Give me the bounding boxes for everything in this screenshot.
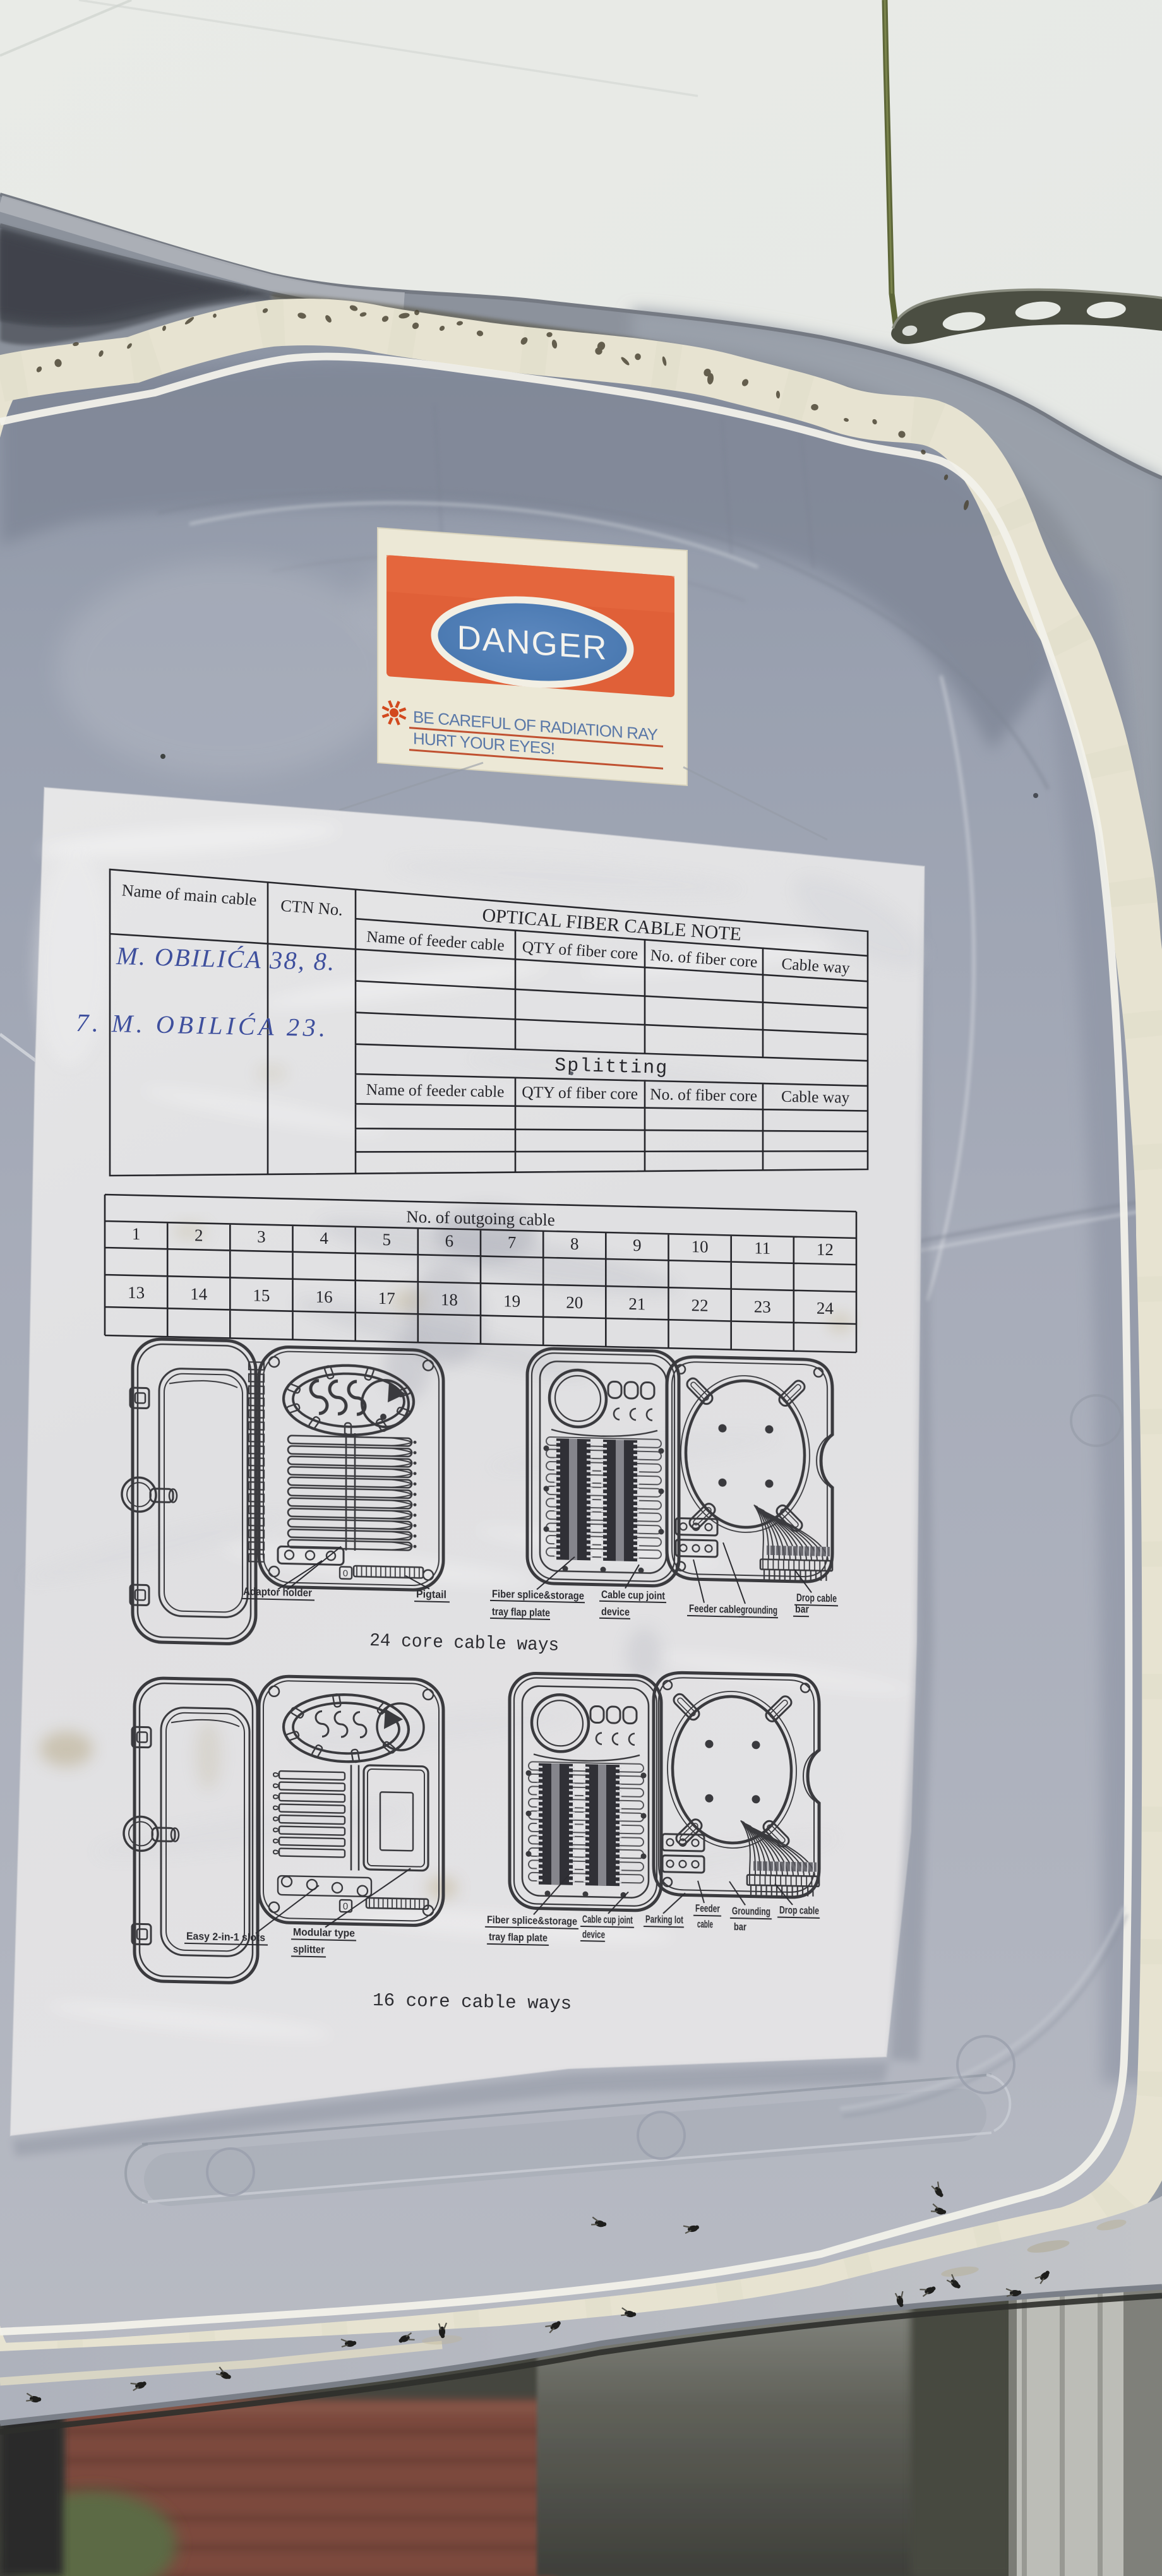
svg-text:Grounding: Grounding <box>732 1905 770 1917</box>
svg-text:18: 18 <box>441 1290 458 1309</box>
svg-text:11: 11 <box>754 1238 770 1258</box>
svg-text:23: 23 <box>754 1297 771 1316</box>
svg-text:10: 10 <box>692 1237 709 1256</box>
svg-text:bar: bar <box>734 1921 746 1933</box>
svg-text:6: 6 <box>445 1231 453 1250</box>
svg-text:QTY of fiber core: QTY of fiber core <box>522 1083 638 1103</box>
svg-text:Cable cup joint: Cable cup joint <box>601 1589 665 1602</box>
svg-text:14: 14 <box>190 1284 207 1304</box>
svg-text:13: 13 <box>128 1283 145 1303</box>
svg-text:8: 8 <box>570 1234 578 1253</box>
svg-text:splitter: splitter <box>293 1943 325 1955</box>
svg-text:22: 22 <box>692 1296 709 1315</box>
svg-text:3: 3 <box>257 1227 265 1246</box>
svg-text:Easy 2-in-1 slots: Easy 2-in-1 slots <box>186 1930 265 1944</box>
svg-text:19: 19 <box>503 1291 520 1311</box>
svg-text:Feeder cable: Feeder cable <box>689 1602 741 1616</box>
svg-text:Drop cable: Drop cable <box>779 1904 819 1917</box>
svg-text:2: 2 <box>195 1225 203 1244</box>
svg-text:7. M. OBILIĆA 23.: 7. M. OBILIĆA 23. <box>76 1008 326 1042</box>
svg-text:Pigtail: Pigtail <box>416 1588 446 1601</box>
svg-text:Name of feeder cable: Name of feeder cable <box>366 1080 505 1101</box>
svg-text:No. of outgoing cable: No. of outgoing cable <box>406 1207 554 1229</box>
svg-text:Fiber splice&storage: Fiber splice&storage <box>487 1914 577 1928</box>
svg-text:Parking lot: Parking lot <box>645 1913 683 1926</box>
svg-text:tray flap plate: tray flap plate <box>492 1606 550 1619</box>
svg-text:Adaptor holder: Adaptor holder <box>243 1585 312 1599</box>
svg-text:Modular type: Modular type <box>293 1926 355 1939</box>
svg-text:15: 15 <box>253 1285 270 1305</box>
svg-text:9: 9 <box>633 1236 641 1255</box>
svg-text:20: 20 <box>566 1293 583 1313</box>
svg-text:17: 17 <box>378 1289 395 1308</box>
svg-text:No. of fiber core: No. of fiber core <box>650 1085 757 1105</box>
svg-text:Splitting: Splitting <box>554 1055 669 1080</box>
svg-text:16 core cable ways: 16 core cable ways <box>373 1990 572 2014</box>
svg-text:Drop cable: Drop cable <box>796 1592 837 1604</box>
svg-text:Fiber splice&storage: Fiber splice&storage <box>492 1588 584 1602</box>
svg-text:device: device <box>582 1928 605 1941</box>
svg-text:12: 12 <box>817 1240 834 1260</box>
svg-text:tray flap plate: tray flap plate <box>489 1931 548 1944</box>
svg-text:device: device <box>601 1606 630 1618</box>
svg-text:21: 21 <box>628 1294 645 1314</box>
svg-text:Feeder: Feeder <box>695 1902 720 1915</box>
svg-text:1: 1 <box>132 1224 140 1243</box>
svg-text:4: 4 <box>320 1229 328 1248</box>
svg-text:24: 24 <box>817 1299 834 1318</box>
svg-text:Cable way: Cable way <box>781 1087 850 1107</box>
svg-text:cable: cable <box>697 1918 713 1931</box>
svg-text:5: 5 <box>382 1230 390 1249</box>
svg-text:7: 7 <box>508 1232 516 1251</box>
svg-text:16: 16 <box>316 1287 333 1307</box>
svg-text:grounding: grounding <box>741 1604 777 1616</box>
svg-text:Cable cup joint: Cable cup joint <box>582 1913 633 1926</box>
